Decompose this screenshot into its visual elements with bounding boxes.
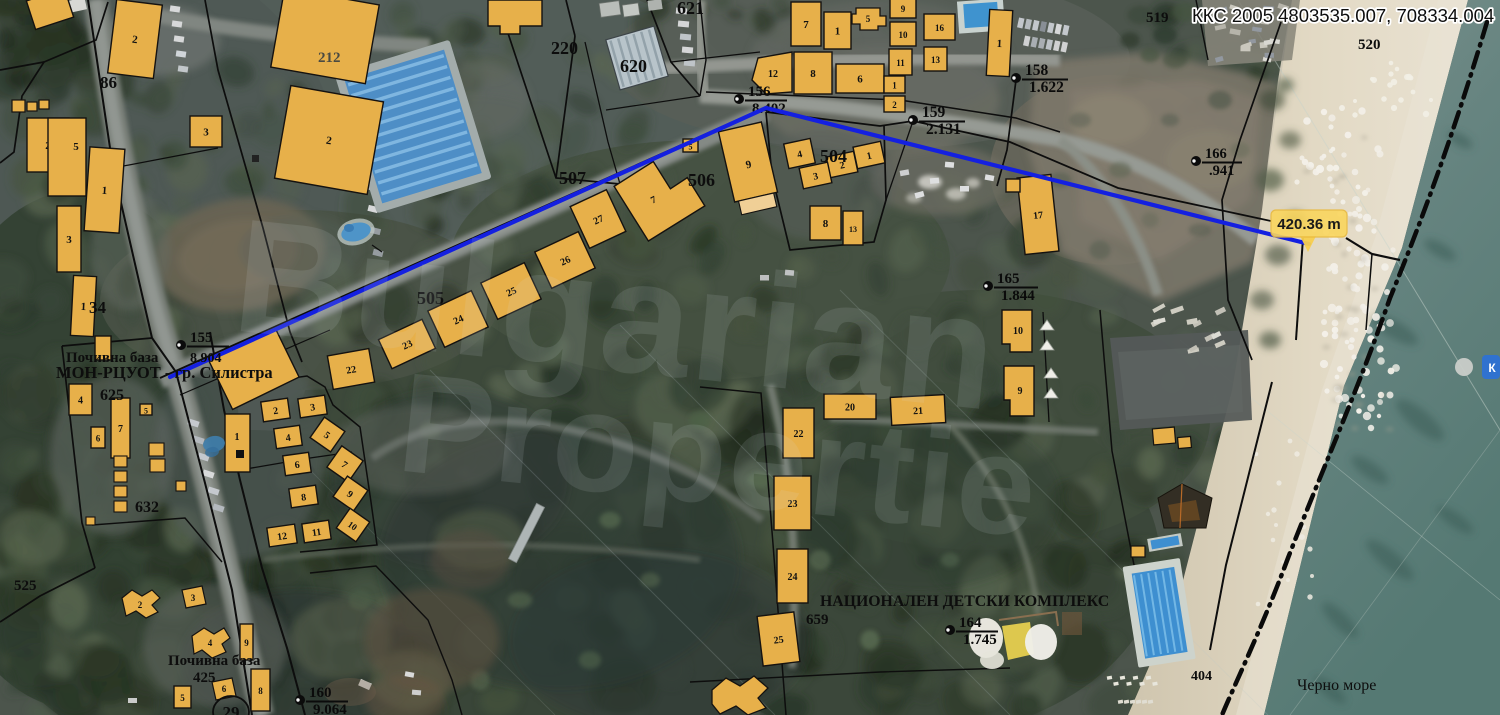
svg-text:10: 10 [1013, 326, 1023, 337]
svg-text:1: 1 [892, 81, 897, 91]
svg-text:Черно море: Черно море [1297, 677, 1376, 694]
svg-text:НАЦИОНАЛЕН ДЕТСКИ КОМПЛЕКС: НАЦИОНАЛЕН ДЕТСКИ КОМПЛЕКС [820, 593, 1109, 610]
svg-text:12: 12 [276, 531, 287, 543]
svg-text:5: 5 [73, 141, 79, 153]
svg-text:16: 16 [935, 23, 945, 33]
svg-text:1: 1 [835, 26, 841, 38]
svg-text:160: 160 [309, 685, 332, 701]
svg-text:8: 8 [258, 686, 263, 696]
svg-text:404: 404 [1191, 669, 1212, 684]
svg-text:9: 9 [1018, 386, 1023, 397]
svg-text:.941: .941 [1209, 163, 1234, 179]
svg-text:13: 13 [931, 55, 941, 65]
svg-text:5: 5 [144, 407, 148, 416]
svg-text:5: 5 [180, 693, 185, 703]
svg-text:625: 625 [100, 387, 124, 404]
svg-text:1: 1 [101, 185, 107, 197]
svg-text:5: 5 [866, 14, 871, 24]
svg-text:4: 4 [78, 396, 83, 407]
svg-text:621: 621 [677, 0, 704, 18]
svg-text:1: 1 [996, 38, 1002, 50]
svg-text:6: 6 [96, 434, 101, 444]
svg-text:1: 1 [80, 301, 86, 313]
svg-text:220: 220 [551, 38, 578, 58]
svg-text:3: 3 [191, 593, 196, 603]
svg-text:9: 9 [901, 4, 906, 14]
svg-text:12: 12 [768, 69, 778, 80]
svg-text:17: 17 [1033, 210, 1044, 222]
svg-text:6: 6 [857, 74, 863, 86]
svg-text:1.844: 1.844 [1001, 288, 1035, 304]
svg-text:3: 3 [203, 127, 209, 139]
svg-text:164: 164 [959, 615, 982, 631]
svg-text:7: 7 [118, 424, 123, 435]
svg-text:425: 425 [193, 670, 216, 686]
svg-text:3: 3 [66, 234, 72, 246]
svg-text:Почивна база: Почивна база [168, 653, 261, 669]
svg-text:1.745: 1.745 [963, 632, 997, 648]
svg-text:620: 620 [620, 56, 647, 76]
svg-text:11: 11 [896, 58, 905, 68]
svg-text:11: 11 [311, 527, 322, 539]
svg-text:ККС 2005 4803535.007, 708334.0: ККС 2005 4803535.007, 708334.004 [1192, 5, 1494, 26]
svg-text:9.064: 9.064 [313, 702, 347, 715]
svg-text:525: 525 [14, 578, 37, 594]
svg-text:420.36 m: 420.36 m [1277, 216, 1340, 233]
svg-text:659: 659 [806, 612, 829, 628]
svg-text:8: 8 [810, 68, 816, 80]
svg-text:34: 34 [89, 298, 107, 317]
svg-text:1: 1 [235, 432, 240, 443]
svg-text:156: 156 [748, 84, 771, 100]
svg-text:29: 29 [223, 703, 240, 715]
svg-text:1.622: 1.622 [1029, 79, 1064, 96]
svg-text:25: 25 [773, 634, 784, 646]
svg-text:4: 4 [208, 638, 213, 648]
svg-text:166: 166 [1205, 146, 1227, 162]
svg-text:504: 504 [820, 146, 847, 166]
svg-text:6: 6 [222, 684, 227, 694]
svg-text:519: 519 [1146, 10, 1169, 26]
svg-text:158: 158 [1025, 62, 1049, 79]
svg-text:520: 520 [1358, 37, 1381, 53]
svg-text:507: 507 [559, 168, 586, 188]
svg-text:10: 10 [899, 30, 909, 40]
svg-text:8: 8 [823, 218, 829, 230]
svg-text:2.131: 2.131 [926, 121, 961, 138]
svg-text:24: 24 [788, 572, 798, 583]
svg-text:159: 159 [922, 104, 946, 121]
svg-text:К: К [1488, 361, 1496, 375]
svg-text:9: 9 [244, 638, 249, 648]
svg-text:632: 632 [135, 499, 159, 516]
svg-text:212: 212 [318, 50, 341, 66]
svg-text:2: 2 [892, 100, 897, 110]
svg-text:13: 13 [849, 225, 857, 234]
svg-text:7: 7 [803, 19, 809, 31]
svg-text:86: 86 [100, 73, 117, 92]
svg-text:506: 506 [688, 170, 715, 190]
svg-text:155: 155 [190, 330, 213, 346]
svg-text:2: 2 [138, 600, 143, 610]
